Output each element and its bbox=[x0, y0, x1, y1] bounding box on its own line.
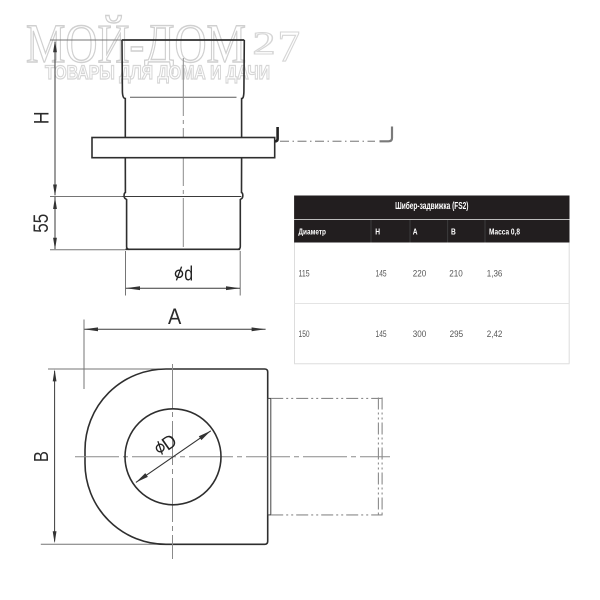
svg-text:H: H bbox=[30, 112, 53, 125]
svg-text:115: 115 bbox=[299, 268, 310, 278]
svg-text:300: 300 bbox=[413, 329, 427, 339]
svg-text:145: 145 bbox=[376, 268, 387, 278]
svg-text:Шибер-задвижка (FS2): Шибер-задвижка (FS2) bbox=[395, 200, 468, 212]
svg-text:A: A bbox=[168, 304, 182, 329]
svg-text:2: 2 bbox=[253, 26, 276, 62]
svg-text:220: 220 bbox=[413, 268, 427, 278]
svg-text:150: 150 bbox=[299, 329, 310, 339]
svg-text:145: 145 bbox=[376, 329, 387, 339]
svg-text:H: H bbox=[375, 227, 380, 237]
svg-text:295: 295 bbox=[450, 329, 464, 339]
svg-text:7: 7 bbox=[278, 22, 301, 71]
svg-text:1,36: 1,36 bbox=[487, 268, 503, 278]
svg-text:2,42: 2,42 bbox=[487, 329, 503, 339]
svg-text:210: 210 bbox=[449, 268, 463, 278]
svg-text:B: B bbox=[31, 451, 53, 462]
svg-text:B: B bbox=[451, 227, 456, 237]
svg-text:ТОВАРЫ ДЛЯ ДОМА И ДАЧИ: ТОВАРЫ ДЛЯ ДОМА И ДАЧИ bbox=[45, 63, 270, 84]
svg-text:Диаметр: Диаметр bbox=[298, 227, 326, 237]
svg-text:A: A bbox=[413, 227, 418, 237]
svg-text:55: 55 bbox=[30, 214, 53, 233]
svg-text:d: d bbox=[184, 264, 193, 286]
svg-text:Масса 0,8: Масса 0,8 bbox=[489, 227, 520, 237]
